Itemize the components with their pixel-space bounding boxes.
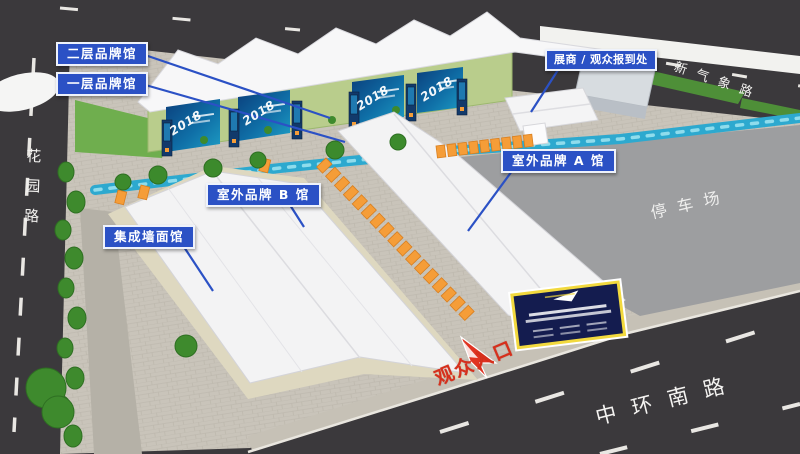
callout-checkin: 展商 / 观众报到处: [545, 49, 657, 71]
road-label-west: 花园路: [20, 148, 44, 239]
callout-second-floor-hall: 二层品牌馆: [56, 42, 148, 66]
callout-wall-hall: 集成墙面馆: [103, 225, 195, 249]
callout-outdoor-hall-b: 室外品牌 B 馆: [206, 183, 321, 207]
site-map: 二层品牌馆 一层品牌馆 展商 / 观众报到处 室外品牌 B 馆 室外品牌 A 馆…: [0, 0, 800, 454]
callout-first-floor-hall: 一层品牌馆: [56, 72, 148, 96]
callout-outdoor-hall-a: 室外品牌 A 馆: [501, 149, 616, 173]
